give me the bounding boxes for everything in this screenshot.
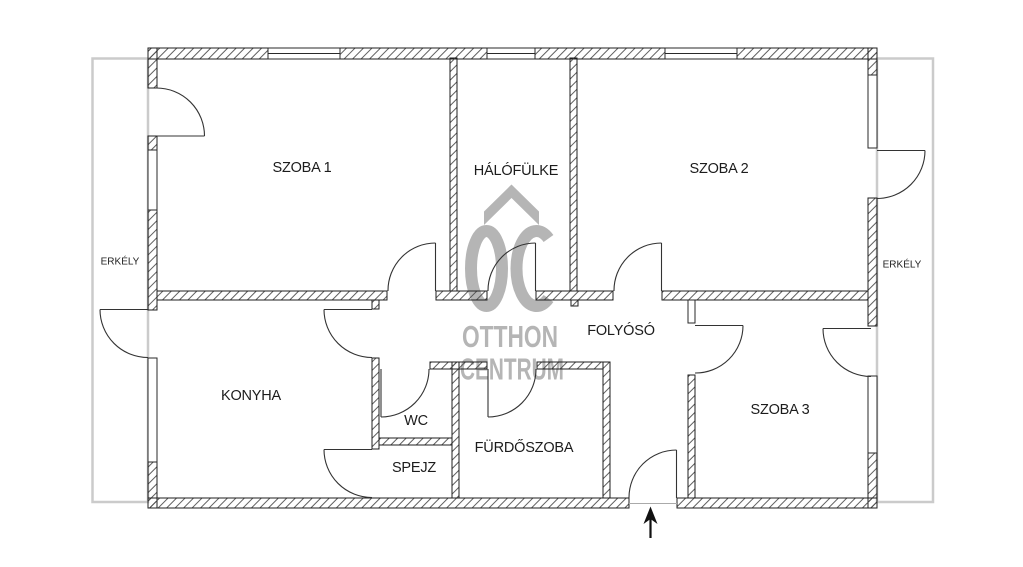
door-room2-balcony <box>877 151 925 199</box>
window-left-kitchen <box>148 358 157 462</box>
window-left-room1 <box>148 150 157 210</box>
floor-plan-drawing: OTTHON CENTRUM <box>0 0 1023 567</box>
room-label-szoba1: SZOBA 1 <box>272 160 331 176</box>
balcony-left-outline <box>93 59 149 503</box>
room-label-halofulke: HÁLÓFÜLKE <box>474 163 558 179</box>
top-windows <box>268 48 737 59</box>
room-label-konyha: KONYHA <box>221 388 281 404</box>
room-label-szoba3: SZOBA 3 <box>750 402 809 418</box>
room-label-spejz: SPEJZ <box>392 460 436 476</box>
room-label-wc: WC <box>404 413 428 429</box>
door-entrance <box>629 450 677 498</box>
door-spejz-kitchen <box>324 450 372 498</box>
door-kitchen-balcony <box>100 310 148 358</box>
watermark: OTTHON CENTRUM <box>460 185 564 387</box>
room-label-furdoszoba: FÜRDŐSZOBA <box>475 440 574 456</box>
door-room1-balcony <box>157 88 205 136</box>
door-room1-corridor <box>388 243 436 291</box>
door-room3-balcony <box>823 329 871 377</box>
door-room2-corridor <box>614 243 662 291</box>
door-wc <box>381 369 429 417</box>
window-right-room3 <box>868 376 877 453</box>
entrance-arrow-icon <box>644 507 658 539</box>
door-kitchen-corridor <box>324 310 372 358</box>
room-label-folyoso: FOLYÓSÓ <box>587 323 655 339</box>
watermark-roof-icon <box>484 185 539 226</box>
balcony-right-outline <box>877 59 933 503</box>
room-label-szoba2: SZOBA 2 <box>689 161 748 177</box>
floor-plan: OTTHON CENTRUM <box>0 0 1023 567</box>
room-label-erkely-left: ERKÉLY <box>101 257 140 268</box>
wall-stub-room3 <box>688 300 695 323</box>
window-right-room2 <box>868 75 877 148</box>
door-room3-corridor <box>695 326 743 374</box>
room-label-erkely-right: ERKÉLY <box>883 260 922 271</box>
watermark-line1: OTTHON <box>462 319 558 354</box>
